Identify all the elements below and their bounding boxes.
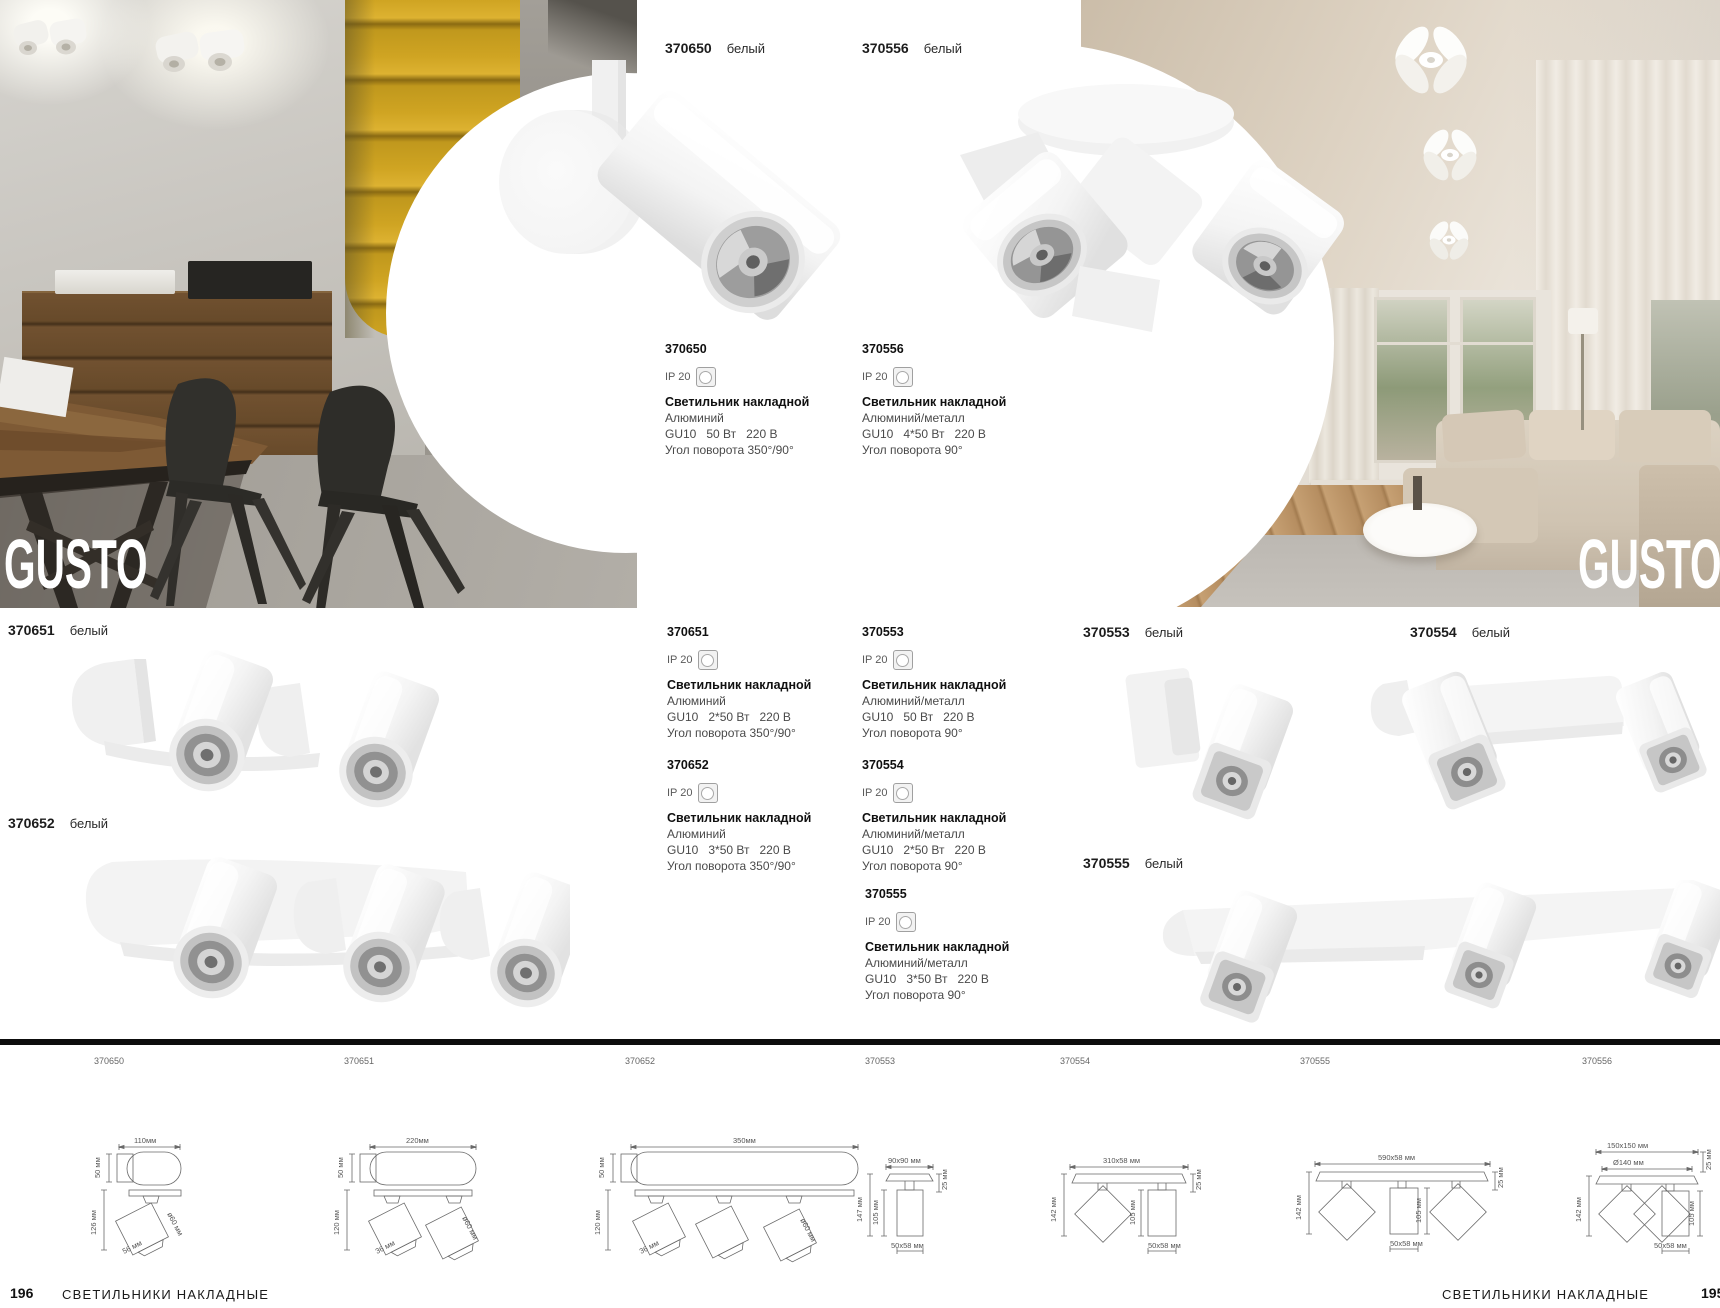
svg-text:ø60 мм: ø60 мм — [165, 1211, 185, 1238]
svg-text:50 мм: 50 мм — [597, 1157, 606, 1178]
svg-text:150x150 мм: 150x150 мм — [1607, 1141, 1648, 1150]
svg-text:590x58 мм: 590x58 мм — [1378, 1153, 1415, 1162]
svg-text:105 мм: 105 мм — [1414, 1198, 1423, 1223]
svg-text:105 мм: 105 мм — [871, 1200, 880, 1225]
svg-text:310x58 мм: 310x58 мм — [1103, 1156, 1140, 1165]
svg-text:25 мм: 25 мм — [1496, 1167, 1505, 1188]
svg-text:142 мм: 142 мм — [1294, 1195, 1303, 1220]
svg-text:25 мм: 25 мм — [940, 1169, 949, 1190]
svg-text:105 мм: 105 мм — [1128, 1200, 1137, 1225]
svg-text:105 мм: 105 мм — [1687, 1201, 1696, 1226]
svg-text:ø60 мм: ø60 мм — [798, 1217, 818, 1244]
svg-text:90x90 мм: 90x90 мм — [888, 1156, 921, 1165]
svg-text:120 мм: 120 мм — [593, 1210, 602, 1235]
svg-text:120 мм: 120 мм — [332, 1210, 341, 1235]
svg-text:147 мм: 147 мм — [855, 1197, 864, 1222]
svg-text:126 мм: 126 мм — [89, 1210, 98, 1235]
svg-text:50x58 мм: 50x58 мм — [891, 1241, 924, 1250]
svg-text:25 мм: 25 мм — [1704, 1149, 1713, 1170]
svg-text:142 мм: 142 мм — [1574, 1197, 1583, 1222]
svg-text:50 мм: 50 мм — [336, 1157, 345, 1178]
svg-text:Ø140 мм: Ø140 мм — [1613, 1158, 1644, 1167]
svg-text:50x58 мм: 50x58 мм — [1654, 1241, 1687, 1250]
svg-text:350мм: 350мм — [733, 1136, 756, 1145]
svg-text:50 мм: 50 мм — [93, 1157, 102, 1178]
svg-text:110мм: 110мм — [134, 1136, 156, 1145]
svg-text:25 мм: 25 мм — [1194, 1169, 1203, 1190]
svg-text:142 мм: 142 мм — [1049, 1197, 1058, 1222]
svg-text:ø60 мм: ø60 мм — [460, 1215, 480, 1242]
svg-text:220мм: 220мм — [406, 1136, 429, 1145]
